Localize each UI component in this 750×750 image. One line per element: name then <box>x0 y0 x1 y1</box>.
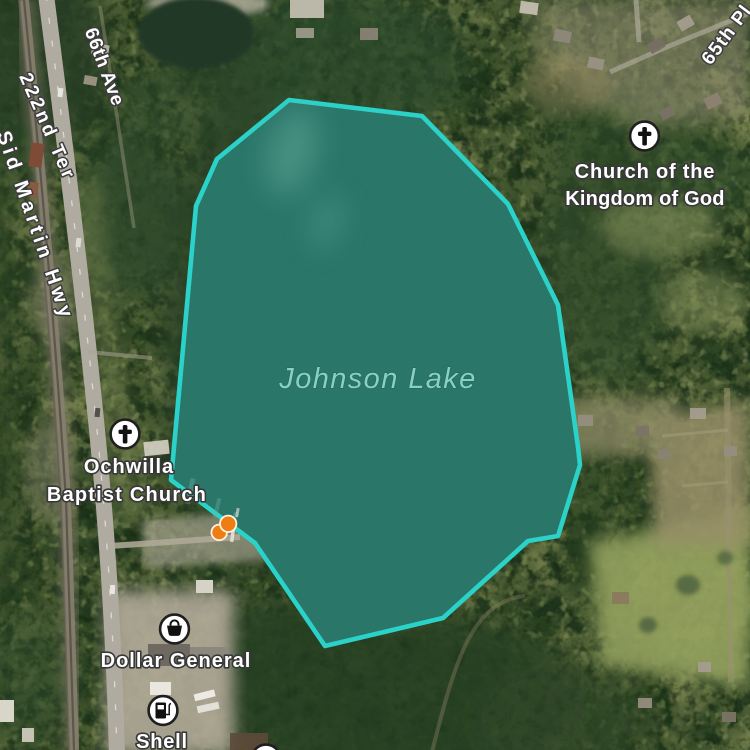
svg-text:Ochwilla: Ochwilla <box>84 456 174 478</box>
svg-text:Kingdom of God: Kingdom of God <box>565 188 724 210</box>
svg-text:Church of the: Church of the <box>575 161 715 183</box>
svg-text:Baptist Church: Baptist Church <box>47 484 207 506</box>
svg-text:Johnson Lake: Johnson Lake <box>278 363 476 395</box>
svg-text:Shell: Shell <box>136 731 188 750</box>
svg-text:Dollar General: Dollar General <box>101 650 252 672</box>
